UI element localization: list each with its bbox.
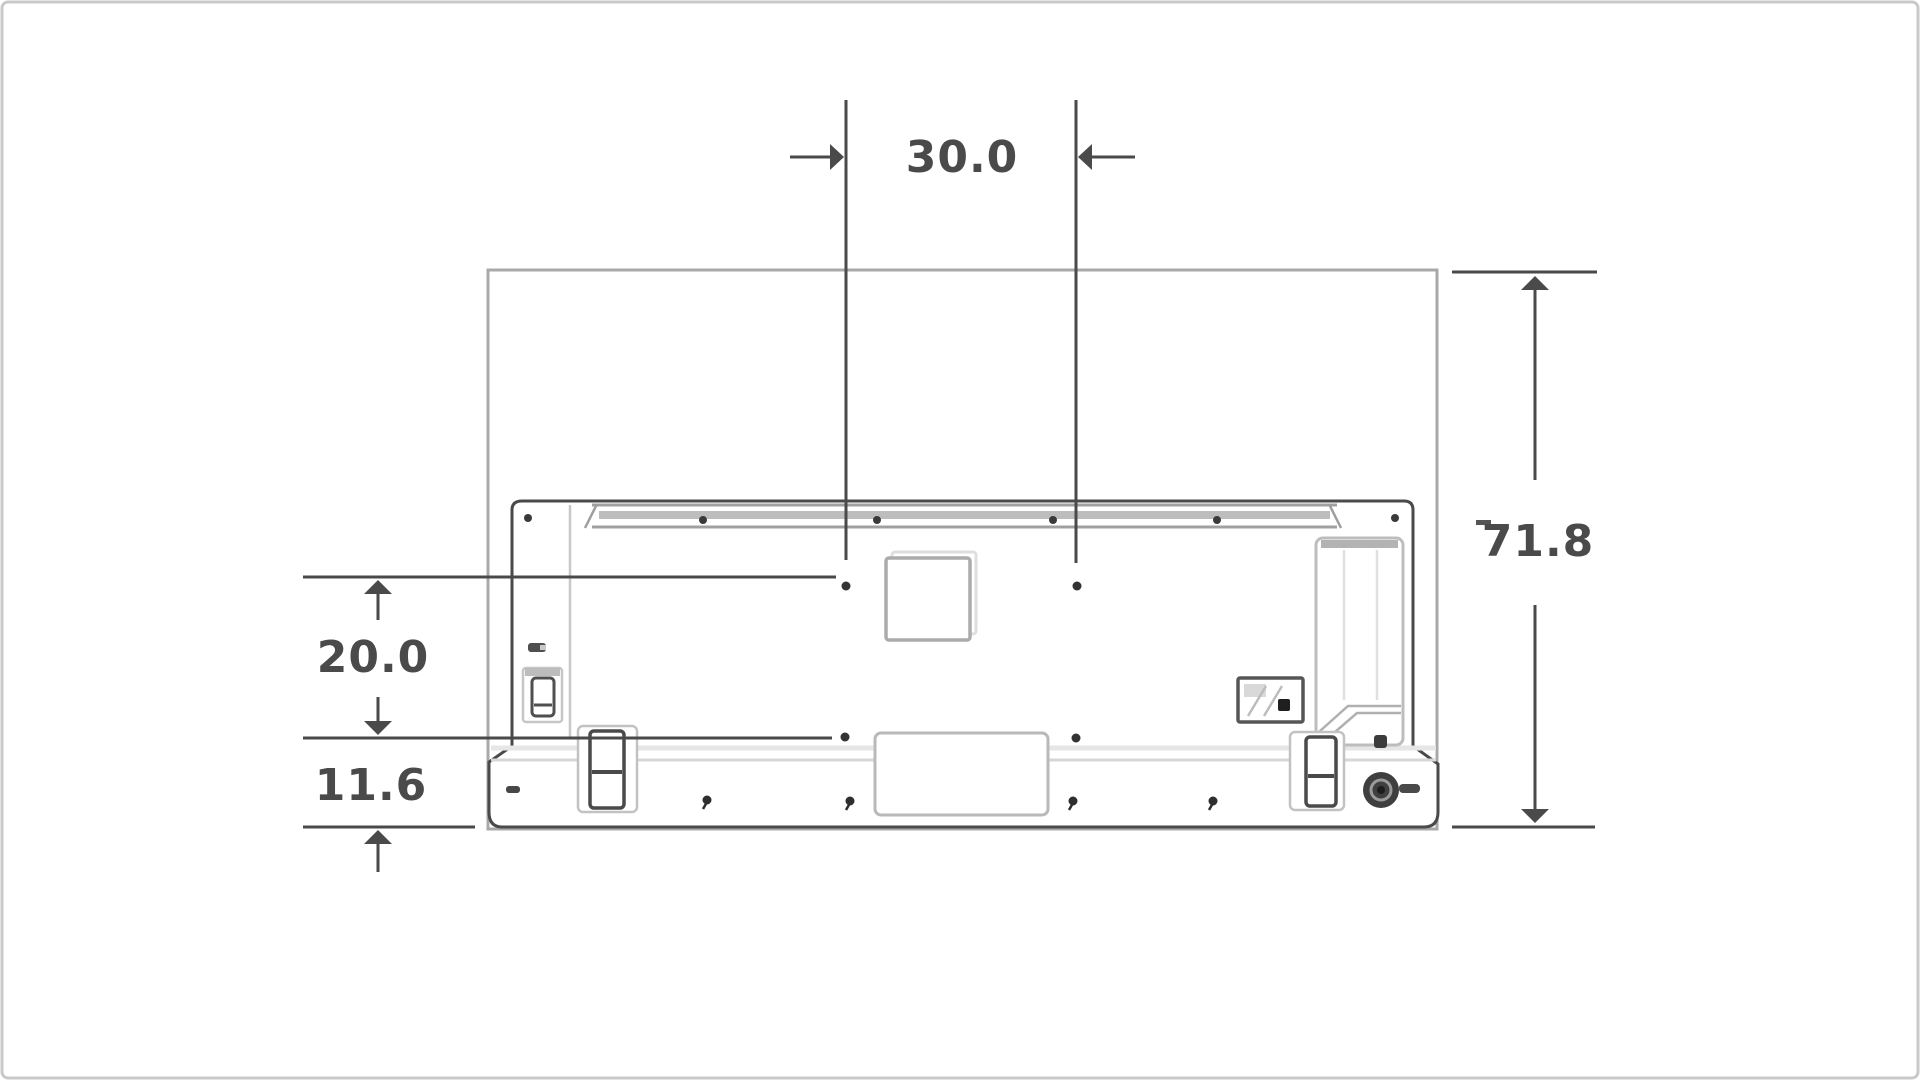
- side-port-dash: [528, 643, 546, 652]
- vesa-hole-bottom-right: [1072, 734, 1081, 743]
- vesa-hole-bottom-left: [841, 733, 850, 742]
- right-slot-bracket: [1290, 732, 1344, 810]
- hatched-label-box: [1238, 678, 1303, 722]
- small-square-dot: [1374, 735, 1387, 748]
- vesa-hole-top-right: [1073, 582, 1082, 591]
- bottom-left-dash: [506, 786, 520, 793]
- dim-label-bottom-offset: 11.6: [315, 760, 428, 811]
- screw-tail-dash: [1399, 784, 1420, 793]
- bottom-connector-panel: [875, 733, 1048, 815]
- diagram-canvas: 30.0 71.8 20.0 11.6: [0, 0, 1920, 1080]
- dim-label-hole-spacing-horizontal: 30.0: [906, 132, 1019, 183]
- screw-dot: [1391, 514, 1399, 522]
- dim-label-panel-height: 71.8: [1482, 516, 1595, 567]
- screw-dot: [699, 516, 707, 524]
- screw-dot: [873, 516, 881, 524]
- left-small-connector: [523, 668, 562, 722]
- screw-dot: [1049, 516, 1057, 524]
- vesa-boss-square: [886, 552, 976, 640]
- screw-dot: [524, 514, 532, 522]
- stand-channel: [1301, 538, 1403, 752]
- screw-dot: [1213, 516, 1221, 524]
- vesa-hole-top-left: [842, 582, 851, 591]
- dim-label-hole-spacing-vertical: 20.0: [317, 632, 430, 683]
- vesa-dimension-diagram: 30.0 71.8 20.0 11.6: [0, 0, 1920, 1080]
- tv-rear-body: [489, 501, 1438, 827]
